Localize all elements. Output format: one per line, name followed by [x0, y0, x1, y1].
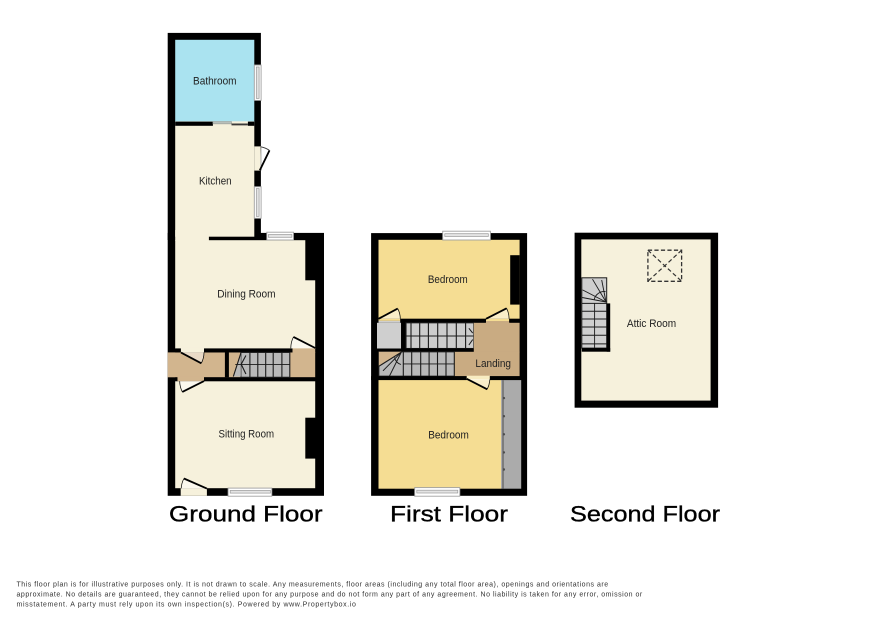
- svg-text:Bedroom: Bedroom: [428, 274, 468, 286]
- svg-text:Landing: Landing: [475, 358, 511, 370]
- svg-text:Sitting Room: Sitting Room: [219, 429, 275, 441]
- svg-text:misstatement. A party must rel: misstatement. A party must rely upon its…: [17, 602, 357, 609]
- svg-text:Bathroom: Bathroom: [193, 76, 237, 88]
- svg-text:First Floor: First Floor: [390, 501, 509, 526]
- svg-text:This floor plan is for illustr: This floor plan is for illustrative purp…: [17, 582, 609, 589]
- svg-text:Ground Floor: Ground Floor: [169, 501, 323, 526]
- svg-text:approximate. No details are gu: approximate. No details are guaranteed, …: [17, 592, 643, 599]
- svg-text:Attic Room: Attic Room: [627, 318, 676, 330]
- svg-text:Dining Room: Dining Room: [217, 288, 275, 300]
- svg-text:Second Floor: Second Floor: [570, 501, 721, 526]
- svg-text:Kitchen: Kitchen: [199, 176, 232, 188]
- svg-text:Bedroom: Bedroom: [428, 430, 469, 442]
